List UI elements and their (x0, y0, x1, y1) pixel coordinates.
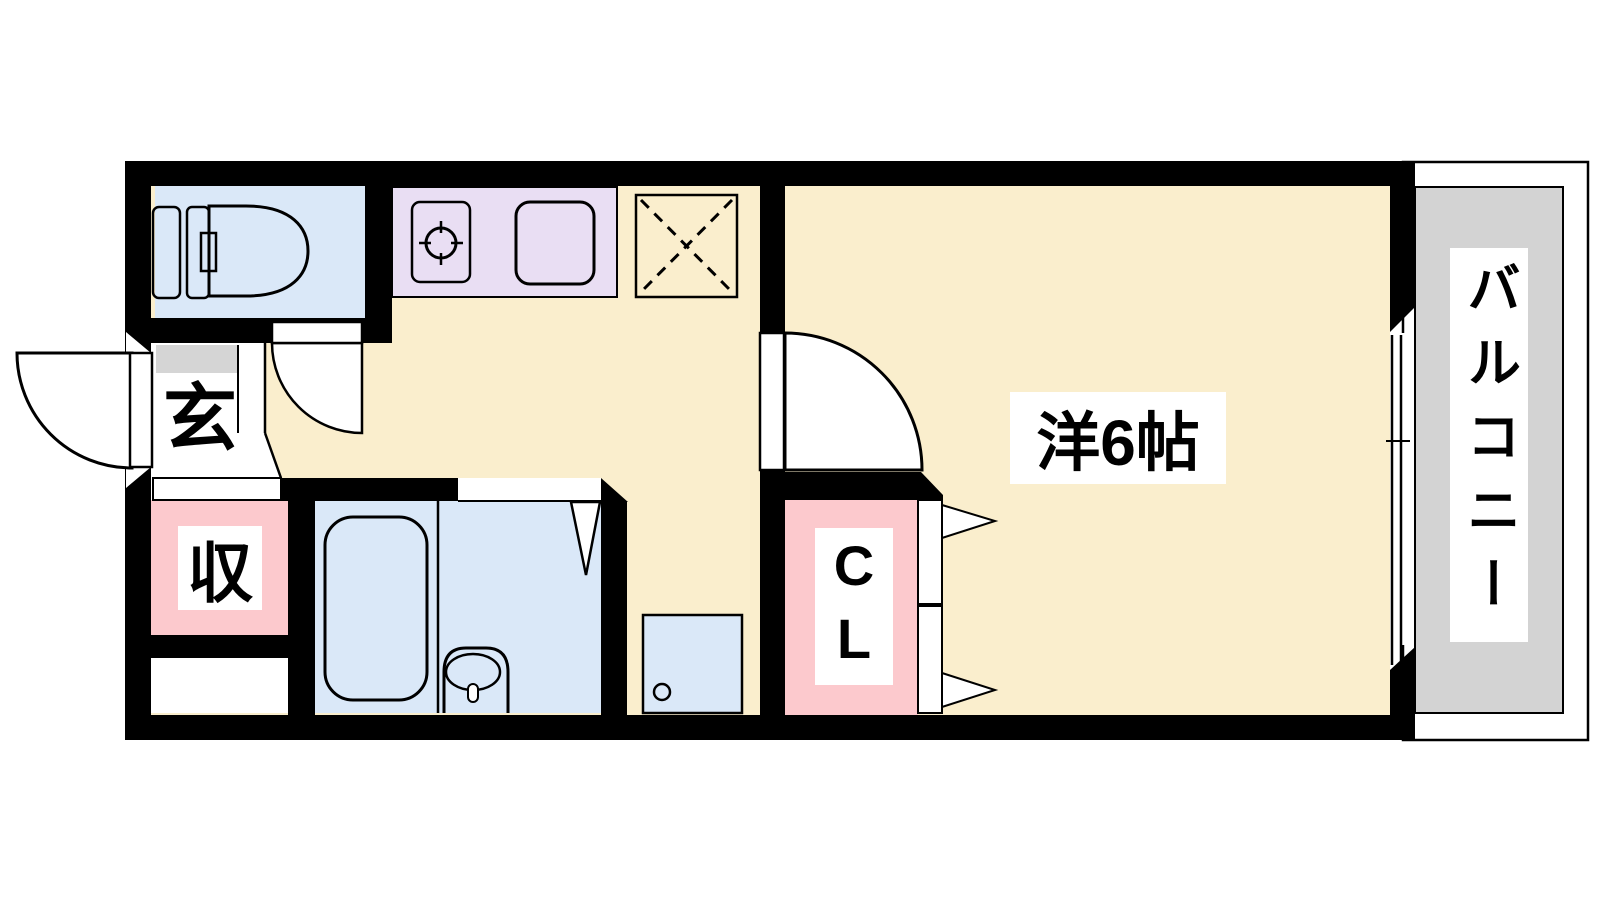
storage-label: 収 (178, 526, 262, 610)
bathroom (311, 501, 601, 713)
main-room-door-leaf (760, 333, 784, 470)
western-room-label: 洋6帖 (1010, 392, 1226, 484)
wall-hall-main-lower (760, 470, 785, 715)
wall-bath-top (281, 478, 458, 501)
closet-label: CL (815, 528, 893, 685)
wall-bottom (125, 715, 1415, 740)
entrance-door-swing (17, 353, 132, 468)
wall-hall-main-upper (760, 161, 785, 333)
window-backing (1391, 333, 1414, 645)
wall-closet-top (760, 472, 943, 500)
shoe-step (153, 478, 281, 500)
wall-bath-right (601, 501, 627, 740)
entrance-door-leaf (130, 353, 152, 467)
balcony-label: バルコニー (1450, 248, 1528, 642)
toilet-door-leaf (272, 322, 362, 343)
wall-toilet-kitchen (365, 161, 392, 343)
wall-right-upper (1390, 161, 1415, 332)
floorplan-page: 玄 収 CL 洋6帖 バルコニー (0, 0, 1600, 900)
wall-under-storage (151, 635, 288, 658)
wall-storage-bath (288, 501, 315, 740)
lower-cabinet (151, 658, 288, 713)
entrance-label: 玄 (158, 370, 242, 454)
faucet-icon (468, 684, 478, 702)
wall-right-lower (1390, 647, 1415, 740)
entrance-door (17, 332, 152, 488)
